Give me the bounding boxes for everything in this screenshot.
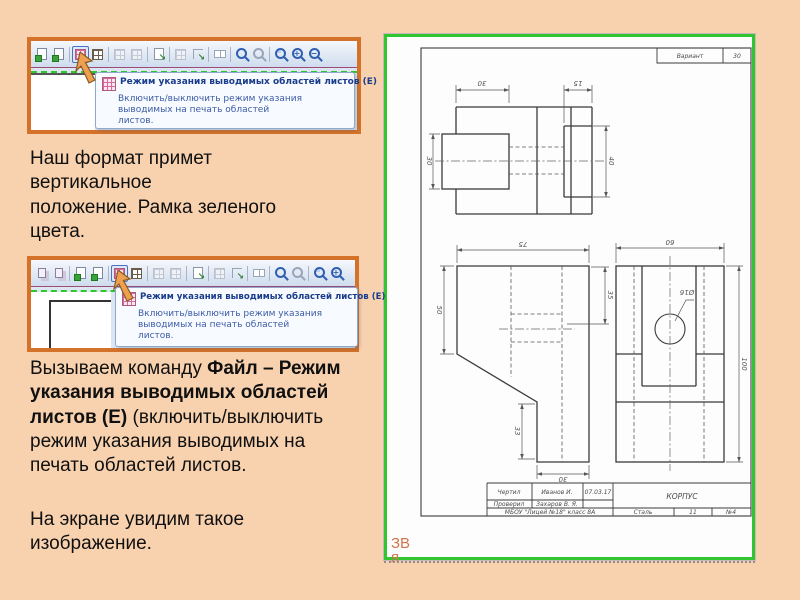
toolbar-separator xyxy=(147,266,148,281)
dim-hole-diameter: Ø16 xyxy=(679,288,695,296)
zoom-minus-icon[interactable] xyxy=(306,46,323,63)
move-area-icon[interactable] xyxy=(228,265,245,282)
titleblock-school: МБОУ "Лицей №18" класс 8А xyxy=(505,509,595,516)
dim-left-width: 75 xyxy=(518,240,527,248)
toolbar-separator xyxy=(308,266,309,281)
variant-label: Вариант xyxy=(677,53,704,60)
toolbar-separator xyxy=(69,47,70,62)
titleblock-drew-name: Иванов И. xyxy=(541,489,572,496)
select-part-icon[interactable] xyxy=(189,265,206,282)
toolbar-separator xyxy=(230,47,231,62)
slide: { "colors":{"slide_bg":"#f8d2af","shot_b… xyxy=(0,0,800,600)
toolbar-screenshot-2: Режим указания выводимых областей листов… xyxy=(27,256,359,352)
tooltip-body: Включить/выключить режим указания выводи… xyxy=(138,309,351,342)
toolbar-separator xyxy=(69,266,70,281)
fit-scale-icon[interactable] xyxy=(89,46,106,63)
titleblock-checked-name: Захаров В. Я. xyxy=(536,501,578,508)
titleblock-material: Сталь xyxy=(634,509,653,516)
toolbar-2 xyxy=(31,260,355,287)
pages-layout-icon[interactable] xyxy=(211,46,228,63)
select-part-icon[interactable] xyxy=(150,46,167,63)
print-area-mode-icon xyxy=(122,292,136,306)
toolbar-separator xyxy=(208,266,209,281)
copy-sheet-2-icon[interactable] xyxy=(50,265,67,282)
layout-icon[interactable] xyxy=(150,265,167,282)
dim-left-height: 50 xyxy=(435,306,443,315)
tooltip-title: Режим указания выводимых областей листов… xyxy=(120,77,377,88)
instruction-text-3: На экране увидим такое изображение. xyxy=(30,508,365,557)
tooltip-2: Режим указания выводимых областей листов… xyxy=(115,287,358,347)
drawing-sheet: ЗВ я xyxy=(384,34,755,560)
print-area-mode-button[interactable] xyxy=(72,46,89,63)
document-page-fragment xyxy=(31,73,95,130)
fit-scale-icon[interactable] xyxy=(128,265,145,282)
toolbar-separator xyxy=(269,47,270,62)
toolbar-separator xyxy=(108,47,109,62)
zoom-pan-icon[interactable] xyxy=(289,265,306,282)
print-area-mode-button[interactable] xyxy=(111,265,128,282)
titleblock-drew-label: Чертил xyxy=(498,489,521,496)
dim-left-step: 33 xyxy=(513,427,521,436)
titleblock-checked-label: Проверил xyxy=(494,501,525,508)
zoom-rect-icon[interactable] xyxy=(272,46,289,63)
zoom-pan-icon[interactable] xyxy=(250,46,267,63)
copy-sheet-icon[interactable] xyxy=(33,265,50,282)
move-area-icon[interactable] xyxy=(189,46,206,63)
toolbar-separator xyxy=(269,266,270,281)
toolbar-screenshot-1: Режим указания выводимых областей листов… xyxy=(27,37,361,134)
text-run: Вызываем команду xyxy=(30,358,207,379)
toolbar-separator xyxy=(208,47,209,62)
corner-note: ЗВ я xyxy=(391,537,410,566)
dim-front-height-left: 30 xyxy=(425,157,433,166)
zoom-tool-icon[interactable] xyxy=(233,46,250,63)
layout-2-icon[interactable] xyxy=(128,46,145,63)
technical-drawing: 30 15 30 40 75 50 35 33 30 60 100 Ø16 Ва… xyxy=(387,37,752,557)
dim-front-width: 30 xyxy=(477,79,486,87)
titleblock-date: 07.03.17 xyxy=(585,489,612,496)
new-sheet-icon[interactable] xyxy=(72,265,89,282)
instruction-text-2: Вызываем команду Файл – Режим указания в… xyxy=(30,357,380,479)
instruction-text-1: Наш формат примет вертикальное положение… xyxy=(30,147,365,244)
grid-settings-icon[interactable] xyxy=(211,265,228,282)
print-area-mode-icon xyxy=(102,77,116,91)
tooltip-body: Включить/выключить режим указания выводи… xyxy=(118,94,348,127)
grid-settings-icon[interactable] xyxy=(172,46,189,63)
tooltip-1: Режим указания выводимых областей листов… xyxy=(95,72,355,129)
dim-front-height-right: 40 xyxy=(607,157,615,166)
toolbar-separator xyxy=(186,266,187,281)
zoom-tool-icon[interactable] xyxy=(272,265,289,282)
titleblock-part-name: КОРПУС xyxy=(666,492,698,501)
zoom-plus-icon[interactable] xyxy=(289,46,306,63)
toolbar-separator xyxy=(247,266,248,281)
titleblock-scale: 11 xyxy=(689,509,697,516)
add-sheet-icon[interactable] xyxy=(89,265,106,282)
layout-icon[interactable] xyxy=(111,46,128,63)
dim-left-right: 35 xyxy=(606,291,614,300)
dim-right-height: 100 xyxy=(740,357,748,371)
dim-right-width: 60 xyxy=(665,238,674,246)
new-sheet-icon[interactable] xyxy=(33,46,50,63)
toolbar-separator xyxy=(147,47,148,62)
dim-front-width2: 15 xyxy=(573,79,582,87)
document-page-fragment xyxy=(31,292,111,348)
toolbar-1 xyxy=(31,41,357,68)
dim-left-bottom: 30 xyxy=(558,475,567,483)
pages-layout-icon[interactable] xyxy=(250,265,267,282)
page-corner-lines xyxy=(49,300,111,348)
variant-value: 30 xyxy=(733,53,741,60)
toolbar-separator xyxy=(108,266,109,281)
layout-2-icon[interactable] xyxy=(167,265,184,282)
toolbar-separator xyxy=(169,47,170,62)
tooltip-title: Режим указания выводимых областей листов… xyxy=(140,292,385,303)
add-sheet-icon[interactable] xyxy=(50,46,67,63)
titleblock-sheet-no: №4 xyxy=(725,509,736,516)
zoom-rect-icon[interactable] xyxy=(311,265,328,282)
zoom-plus-icon[interactable] xyxy=(328,265,345,282)
